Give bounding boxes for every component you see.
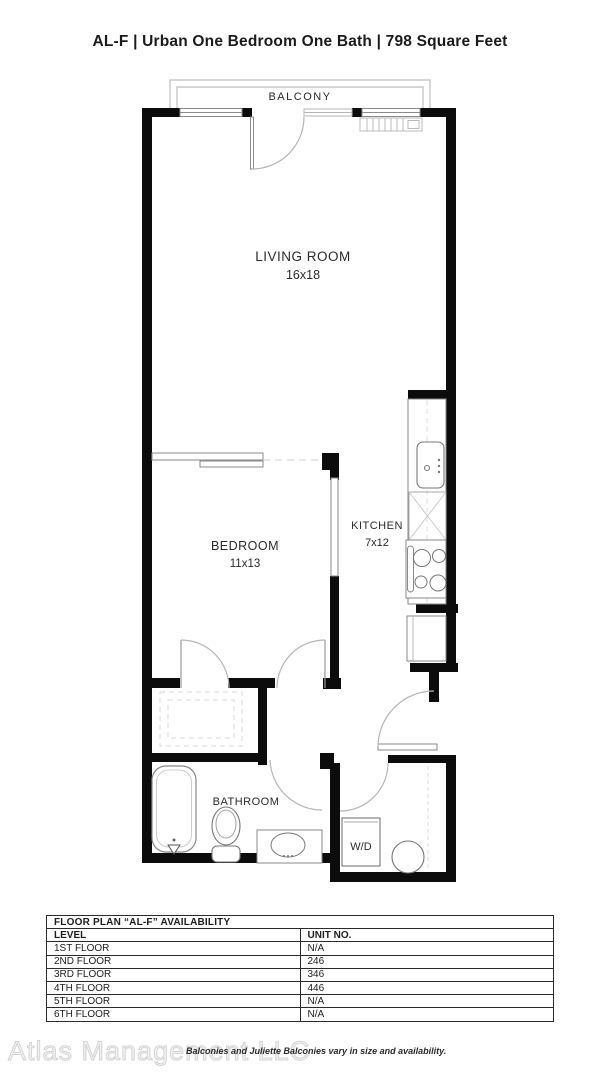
level-cell: 1ST FLOOR xyxy=(47,942,301,955)
level-cell: 2ND FLOOR xyxy=(47,955,301,968)
table-row: 4TH FLOOR 446 xyxy=(47,981,554,994)
balcony-fixed-panel xyxy=(304,109,352,116)
unit-cell: 246 xyxy=(300,955,554,968)
closet-door xyxy=(181,640,229,688)
unit-cell: 446 xyxy=(300,981,554,994)
level-cell: 3RD FLOOR xyxy=(47,968,301,981)
unit-cell: N/A xyxy=(300,942,554,955)
table-row: 6TH FLOOR N/A xyxy=(47,1008,554,1021)
vanity-sink xyxy=(257,830,322,863)
window-right xyxy=(362,109,420,117)
refrigerator xyxy=(407,616,446,661)
table-row: 1ST FLOOR N/A xyxy=(47,942,554,955)
table-title-row: FLOOR PLAN “AL-F” AVAILABILITY xyxy=(47,916,554,929)
balcony-door xyxy=(251,117,305,169)
wd-door xyxy=(340,763,388,811)
window-left xyxy=(180,109,242,117)
table-row: 3RD FLOOR 346 xyxy=(47,968,554,981)
table-header-row: LEVEL UNIT NO. xyxy=(47,929,554,942)
toilet xyxy=(212,807,240,862)
kitchen-sink xyxy=(417,442,444,488)
living-room-dims: 16x18 xyxy=(286,268,320,282)
bedroom-label: BEDROOM xyxy=(211,539,279,553)
living-room-label: LIVING ROOM xyxy=(255,249,351,264)
water-heater xyxy=(392,841,424,873)
stove xyxy=(406,540,446,598)
unit-cell: N/A xyxy=(300,995,554,1008)
bathroom-label: BATHROOM xyxy=(213,796,280,808)
kitchen-label: KITCHEN xyxy=(351,520,403,532)
unit-cell: N/A xyxy=(300,1008,554,1021)
table-row: 2ND FLOOR 246 xyxy=(47,955,554,968)
col-header-level: LEVEL xyxy=(47,929,301,942)
bedroom-dims: 11x13 xyxy=(230,558,260,570)
closet-shelving xyxy=(160,692,242,746)
heater-unit xyxy=(360,118,422,131)
availability-table: FLOOR PLAN “AL-F” AVAILABILITY LEVEL UNI… xyxy=(46,915,554,1022)
balcony-label: BALCONY xyxy=(268,91,331,103)
washer-dryer-label: W/D xyxy=(350,841,371,853)
bedroom-sliding-door-top xyxy=(152,453,322,467)
table-title: FLOOR PLAN “AL-F” AVAILABILITY xyxy=(47,916,554,929)
kitchen-dims: 7x12 xyxy=(365,537,389,549)
level-cell: 5TH FLOOR xyxy=(47,995,301,1008)
unit-cell: 346 xyxy=(300,968,554,981)
disclaimer-text: Balconies and Juliette Balconies vary in… xyxy=(186,1046,446,1056)
level-cell: 6TH FLOOR xyxy=(47,1008,301,1021)
col-header-unit: UNIT NO. xyxy=(300,929,554,942)
entry-door xyxy=(378,691,437,750)
bathtub xyxy=(152,766,196,854)
table-row: 5TH FLOOR N/A xyxy=(47,995,554,1008)
bedroom-pocket-door-right xyxy=(331,478,338,576)
bedroom-hall-door xyxy=(277,640,325,688)
level-cell: 4TH FLOOR xyxy=(47,981,301,994)
